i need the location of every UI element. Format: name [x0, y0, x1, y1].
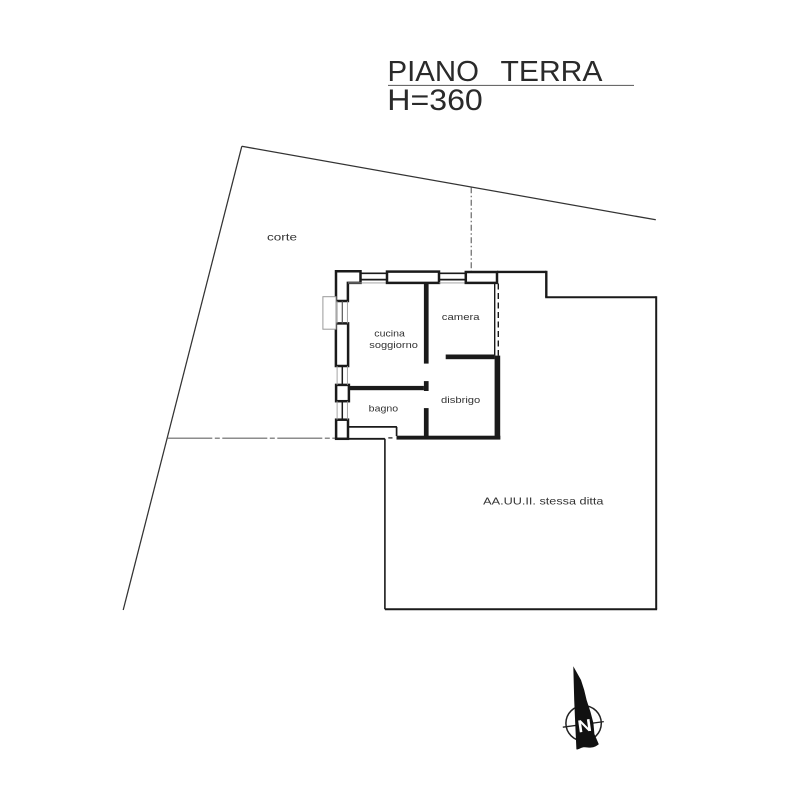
svg-text:cucina: cucina — [374, 328, 405, 339]
svg-text:bagno: bagno — [369, 403, 398, 414]
svg-text:TERRA: TERRA — [501, 56, 604, 88]
svg-text:soggiorno: soggiorno — [369, 340, 418, 351]
svg-text:camera: camera — [442, 312, 481, 323]
svg-text:disbrigo: disbrigo — [441, 395, 480, 406]
svg-text:H=360: H=360 — [387, 84, 483, 117]
svg-text:corte: corte — [267, 233, 298, 244]
svg-text:AA.UU.II. stessa ditta: AA.UU.II. stessa ditta — [483, 496, 603, 508]
svg-text:PIANO: PIANO — [388, 56, 480, 88]
